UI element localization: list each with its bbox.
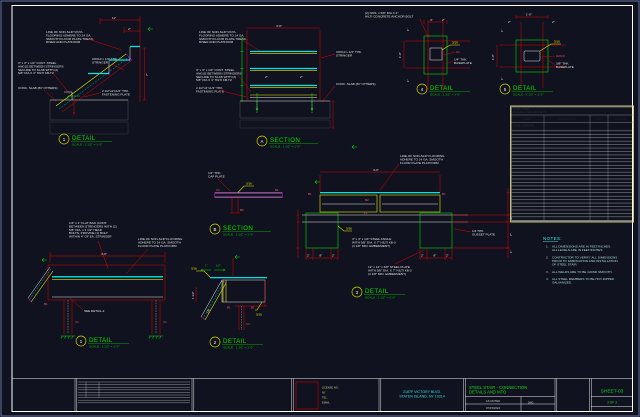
mark-c8-stringer: C8 (205, 308, 211, 314)
detail-5-title: DETAIL (513, 85, 537, 92)
mark-b2: B2 (365, 198, 369, 202)
company-logo (22, 384, 96, 398)
dim-4in: 4" (430, 18, 433, 22)
dim-h-d5: 1'-0" (491, 54, 495, 60)
dim-s3: 2" (332, 254, 335, 258)
mark-c1-d2: C1 (246, 322, 250, 326)
label-see-detail-2: SEE DETAIL-2 (84, 309, 105, 313)
detail-1b-title: DETAIL (89, 337, 113, 344)
detail-1-number: 1 (63, 137, 66, 142)
gusset-left (306, 213, 338, 248)
dim-s6: 2" (446, 254, 449, 258)
label-stringer-a: C8X10 x 1/4" THK.STRINGER (336, 50, 362, 57)
scale-field: AS NOTED (486, 399, 500, 403)
cad-paperspace: LINE OF NON-SLIP VINYLFLOORING ADHERE TO… (0, 0, 640, 417)
dim-s5: 8" (434, 254, 437, 258)
sheet-number: SHEET-03 (601, 389, 624, 395)
dim-r3: 1" (509, 250, 513, 253)
note-4: ALL STEEL MEMBERS TO BE HOT-DIPPEDGALVAN… (552, 277, 615, 285)
mark-l1: L1 (364, 211, 368, 215)
stamp-line-1: LICENSE NO : (322, 386, 339, 390)
weld-callout-d2a: 3/16 (191, 267, 197, 271)
label-flat-bar: 1/4" x 4" FLAT BAR (CONT.BETWEEN STRINGE… (69, 221, 117, 239)
date-field: 07/15/2024 (486, 406, 500, 410)
section-b-title: SECTION (223, 225, 253, 232)
detail-1-title: DETAIL (72, 135, 96, 142)
weld-callout-d2b: 3/16 (256, 313, 262, 317)
notes-block: NOTES: 1. ALL DIMENSIONS ARE IN FEET/INC… (543, 236, 618, 285)
dim-r1: 1" (509, 216, 513, 219)
dim-7in: 7" (145, 73, 149, 76)
mto-header-mark: MARK (523, 117, 531, 121)
mark-c2c3: C2/C3 (556, 54, 565, 58)
section-a-title: SECTION (270, 137, 300, 144)
sheet-page: 3 OF 3 (607, 400, 617, 404)
section-a-scale: SCALE : 1 1/2" = 1'-0" (270, 145, 300, 149)
detail-5-baseplate: 1'-0" 2" 2" 1'-0" 1" 1" 3/16 C2/C3 3/8" … (491, 13, 574, 97)
dim-c-d2: 1 1/2" (191, 292, 195, 299)
notes-heading: NOTES: (543, 236, 562, 241)
dim-height-d4: 1'-0" (398, 52, 402, 58)
dim-2in-d4: 2" (442, 18, 445, 22)
dim-t2-d5: 1" (500, 77, 504, 80)
detail-1b-platform-elevation: 1/4" x 4" FLAT BAR (CONT.BETWEEN STRINGE… (28, 221, 183, 349)
note-1: ALL DIMENSIONS ARE IN FEET/INCHES.ALL LE… (552, 245, 611, 253)
detail-4-scale: SCALE : 1 1/2" = 1'-0" (430, 93, 460, 97)
dim-b-d2: 1/2" (216, 264, 221, 268)
mto-rows (512, 128, 633, 220)
detail-2-scale: SCALE : 1 1/2" = 1'-0" (223, 346, 253, 350)
mark-b1-right: B1 (442, 192, 446, 196)
mark-b1-b: B1 (275, 188, 279, 192)
label-baseplate-d5: 3/8" THK.BASEPLATE (556, 62, 574, 69)
label-fastening-plate-a: 2 1/2"x2"x1/4" THK.FASTENING PLATE (196, 86, 224, 93)
mto-header-desc: DESCRIPTION (558, 117, 576, 121)
label-nonslip-tread: LINE OF NON-SLIP VINYLFLOORING ADHERE TO… (46, 30, 94, 44)
dim-11in: 11" (112, 16, 116, 20)
mto-section-row: STEEL MEMBERS (513, 124, 534, 127)
detail-4-baseplate: 4" 2" 1'-0" 1" 1" 3/16 C1 1/4" THK.BASEP… (398, 18, 472, 97)
weld-callout-d3: 3/16 (346, 227, 352, 231)
subbase-hatch (50, 122, 128, 134)
label-fastening-plate: 2 1/2"x2"x1/4" THK.FASTENING PLATE (102, 89, 130, 96)
mark-b1-d1b: B1 (44, 302, 48, 306)
label-anchor-bolt: (2) NOS. x 5/8" DIA X 4"HILTI CONCRETE A… (365, 11, 413, 18)
section-a: LINE OF NON-SLIP VINYLFLOORING ADHERE TO… (196, 24, 375, 149)
weld-callout-b: 3/16 (246, 182, 252, 186)
dim-s4: 2" (421, 254, 424, 258)
project-address: 2187F VICTORY BLVD.STATEN ISLAND, NY 103… (399, 390, 445, 398)
dim-2in: 2" (128, 27, 131, 31)
section-b-scale: SCALE : 1 1/2" = 1'-0" (223, 233, 253, 237)
mto-table-body (511, 106, 634, 222)
label-baseplate-d4: 1/4" THK.BASEPLATE (454, 58, 472, 65)
detail-2-title: DETAIL (223, 338, 247, 345)
note-4-no: 4. (546, 277, 549, 281)
label-floor-d3: LINE OF NON-SLIP FLOORINGADHERE TO 14 GA… (400, 154, 445, 165)
section-b-letter: B (214, 227, 217, 232)
detail-1b-number: 1 (80, 339, 83, 344)
dim-width-a: 4'-0" (276, 24, 282, 28)
mark-c1-left: C1 (75, 320, 79, 324)
section-b-cap-plate: 1/4" THK.CAP PLATE 3/16 C1 B1 B2 B SECTI… (208, 171, 283, 237)
stamp-line-3: TEL. (322, 396, 328, 400)
sheet-title: STEEL STAIR - CONNECTIONDETAILS AND MTO (469, 385, 527, 395)
mto-title: STEEL STAIRMATERIAL TAKE OFF (MTO) (513, 108, 546, 114)
label-stringer: C8X10 x 1/4" THK.STRINGER (92, 57, 118, 64)
note-2-no: 2. (546, 256, 549, 260)
dim-s2: 8" (320, 254, 323, 258)
detail-4-number: 4 (421, 87, 424, 92)
detail-4-title: DETAIL (430, 85, 454, 92)
dim-t2-d4: 1" (406, 79, 410, 82)
detail-1-stair-base: LINE OF NON-SLIP VINYLFLOORING ADHERE TO… (18, 16, 153, 147)
dim-r2: 7" (509, 233, 513, 236)
sheet-frame (12, 6, 633, 412)
dim-w-d5: 1'-0" (526, 13, 532, 17)
dim-s1: 2" (307, 254, 310, 258)
dim-w-d3: 4'-0" (373, 168, 379, 172)
note-1-no: 1. (546, 245, 549, 249)
label-angle-d3: 4" x 4" x 1/4" STEEL ANGLEWITH 5/8" DIA.… (352, 237, 396, 248)
label-gusset-d3: 1/4 THK.GUSSET PLATE (472, 229, 495, 236)
mto-table: STEEL STAIRMATERIAL TAKE OFF (MTO) MARK … (511, 106, 634, 222)
mark-c1: C1 (456, 50, 460, 54)
stamp-line-4: EMAIL (322, 401, 330, 405)
gusset-right (420, 213, 452, 248)
note-3: ALL WELDS ARE TO BE GRIND SMOOTH. (552, 270, 613, 274)
title-block: LICENSE NO : NY TEL. EMAIL 2187F VICTORY… (12, 379, 633, 412)
mark-c1-b: C1 (216, 188, 220, 192)
note-2: CONTRACTOR TO VERIFY ALL DIMENSIONSPRIOR… (552, 256, 618, 267)
mark-c1-right: C1 (163, 320, 167, 324)
detail-3-scale: SCALE : 1 1/2" = 1'-0" (365, 296, 395, 300)
dim-w-d1b: 4'-0" (101, 252, 107, 256)
cad-sheet: LINE OF NON-SLIP VINYLFLOORING ADHERE TO… (0, 0, 640, 417)
detail-1-scale: SCALE : 1 1/2" = 1'-0" (72, 143, 102, 147)
stamp-line-2: NY (322, 391, 326, 395)
label-cap-plate: 1/4" THK.CAP PLATE (208, 171, 225, 178)
dim-t1-d5: 1" (500, 29, 504, 32)
mark-b1-d2a: B1 (227, 306, 231, 310)
mark-b1-left: B1 (308, 192, 312, 196)
label-conc-slab: CONC. SLAB (BY OTHERS) (18, 86, 57, 90)
detail-5-scale: SCALE : 1 1/2" = 1'-0" (513, 93, 543, 97)
dim-t1-d4: 1" (406, 28, 410, 31)
label-cont-angle: 3" x 3" x 1/4" CONT. STEELANGLE BETWEEN … (18, 61, 64, 75)
detail-2-corner: 1" 1/2" C8 3/16 3/16 1 1/2" B1 B1 C1 2 D… (191, 255, 267, 349)
weld-callout-d4: 3/16 (452, 41, 458, 45)
detail-5-number: 5 (504, 87, 507, 92)
label-floor-d1b: LINE OF NON-SLIP FLOORINGADHERE TO 14 GA… (138, 237, 183, 248)
note-3-no: 3. (546, 270, 549, 274)
label-conc-slab-a: CONC. SLAB (BY OTHERS) (336, 82, 375, 86)
dim-2b-d5: 2" (552, 20, 555, 24)
detail-3-number: 3 (356, 290, 359, 295)
dim-a-d2: 1" (205, 264, 207, 268)
pe-stamp-box (296, 382, 318, 409)
dim-2a: 2" (265, 75, 268, 79)
concrete-slab-hatch (50, 100, 128, 120)
weld-callout-d5: 3/16 (554, 40, 560, 44)
revision-table (78, 382, 190, 408)
detail-1b-scale: SCALE : 1 1/2" = 1'-0" (89, 345, 119, 349)
detail-3-title: DETAIL (365, 288, 389, 295)
dim-2a-d5: 2" (508, 20, 511, 24)
mark-b1-d2b: B1 (251, 306, 255, 310)
detail-3-platform: LINE OF NON-SLIP FLOORINGADHERE TO 14 GA… (297, 154, 514, 300)
mto-header-length: LENGTH (615, 117, 626, 121)
baseplate-c1-outline (424, 36, 447, 74)
label-cont-angle-a: 3" x 3" x 1/4" CONT. STEELANGLE BETWEEN … (196, 68, 242, 82)
mto-header-qty: QTY (596, 117, 602, 121)
section-a-letter: A (261, 139, 264, 144)
label-plate-d3: 12" x 12" x 3/8" STEEL PLATEWITH 5/8" DI… (368, 265, 412, 276)
mark-b2-b: B2 (240, 208, 244, 212)
dim-2b: 2" (300, 75, 303, 79)
label-nonslip-tread-a: LINE OF NON-SLIP VINYLFLOORING ADHERE TO… (199, 30, 247, 44)
dwg-tag: DWG. (528, 402, 535, 404)
detail-2-number: 2 (214, 340, 217, 345)
